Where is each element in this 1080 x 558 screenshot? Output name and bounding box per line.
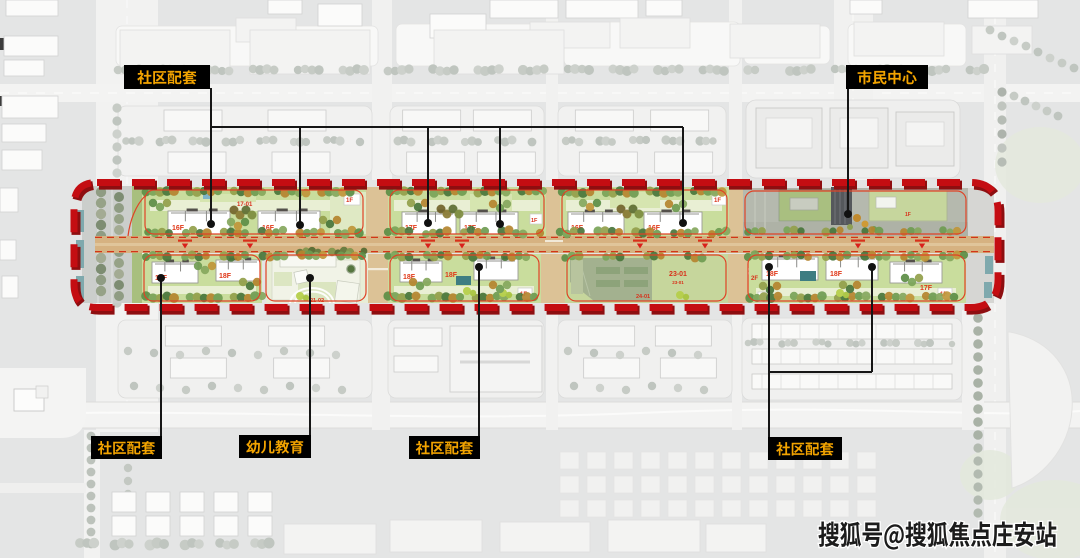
svg-text:18F: 18F bbox=[766, 271, 779, 278]
svg-text:18F: 18F bbox=[219, 273, 232, 280]
svg-text:1F: 1F bbox=[346, 198, 353, 204]
svg-text:1F: 1F bbox=[531, 218, 538, 224]
svg-text:24-01: 24-01 bbox=[636, 294, 650, 300]
svg-text:23-01: 23-01 bbox=[669, 271, 687, 278]
svg-text:18F: 18F bbox=[830, 271, 843, 278]
svg-text:17F: 17F bbox=[920, 285, 933, 292]
svg-text:1F: 1F bbox=[714, 198, 721, 204]
svg-text:2F: 2F bbox=[751, 276, 758, 282]
svg-text:1F: 1F bbox=[905, 212, 911, 218]
svg-text:23-01: 23-01 bbox=[672, 280, 684, 285]
svg-text:18F: 18F bbox=[445, 272, 458, 279]
